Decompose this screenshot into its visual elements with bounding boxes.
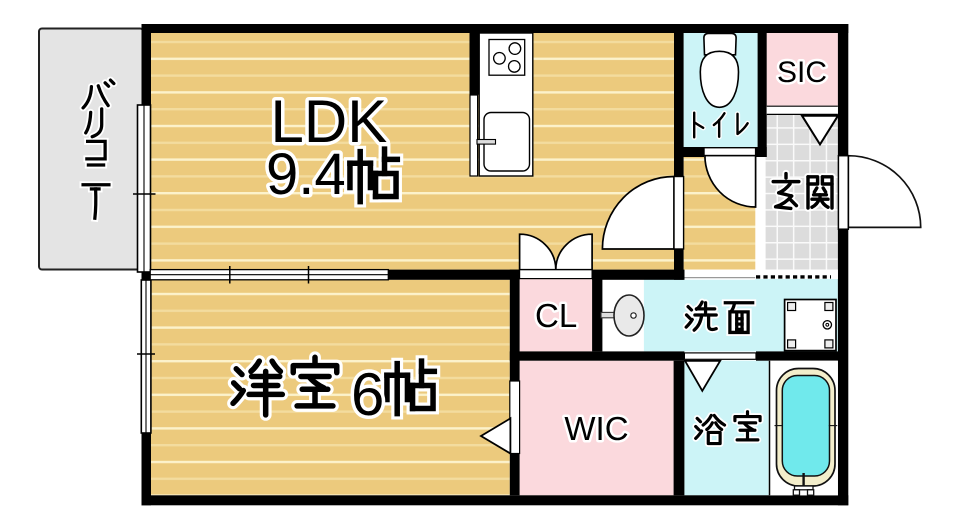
svg-text:SIC: SIC (777, 56, 827, 89)
svg-text:CL: CL (535, 297, 577, 334)
svg-text:WIC: WIC (564, 410, 628, 447)
svg-text:6: 6 (351, 361, 384, 428)
svg-text:9.4: 9.4 (266, 142, 347, 207)
